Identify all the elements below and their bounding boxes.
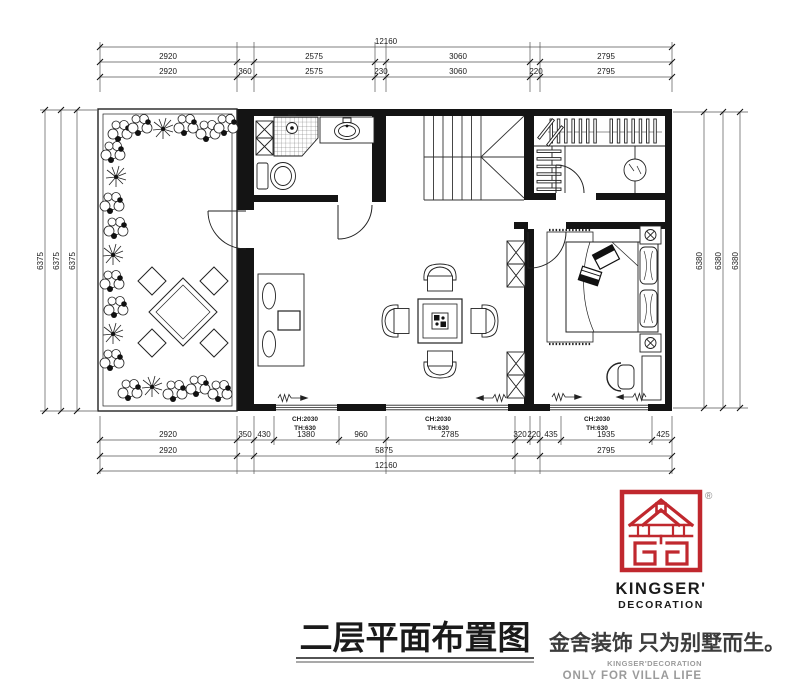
dimension-chain-top: 12160 2920 2575 3060 2795 2920 360 2575 … (97, 37, 675, 92)
dimension-chain-right: 6380 6380 6380 (673, 109, 748, 411)
window-label-ch: CH:2030 (425, 416, 451, 423)
brand-tagline: 金舍装饰 只为别墅而生。 (548, 631, 785, 655)
dim-label: 3060 (449, 52, 467, 61)
terrace (98, 109, 238, 411)
toilet (257, 163, 296, 190)
curtain-symbol (552, 394, 581, 401)
dim-label: 220 (527, 430, 541, 439)
registered-mark: ® (705, 491, 713, 502)
dim-label: 320 (513, 430, 527, 439)
floor-plan-sheet: 12160 2920 2575 3060 2795 2920 360 2575 … (0, 0, 800, 685)
kingser-logo: ® KINGSER' DECORATION (615, 491, 713, 611)
desk (642, 356, 661, 400)
closet-mirror (624, 146, 646, 193)
terrace-table-set (138, 267, 228, 357)
drawing-title: 二层平面布置图 (296, 620, 534, 662)
dim-label: 6375 (36, 252, 45, 270)
dim-label: 230 (374, 67, 388, 76)
dim-label: 2920 (159, 67, 177, 76)
window-label-ch: CH:2030 (584, 416, 610, 423)
dim-label: 6380 (731, 252, 740, 270)
sideboard (258, 274, 304, 366)
bathroom (256, 115, 374, 239)
dim-label: 2795 (597, 52, 615, 61)
nightstand (640, 334, 661, 352)
bottom-windows (276, 405, 648, 410)
dim-label: 435 (544, 430, 558, 439)
bathroom-door (338, 205, 372, 239)
desk-chair (607, 363, 634, 391)
brand-tagline-block: 金舍装饰 只为别墅而生。 KINGSER'DECORATION ONLY FOR… (548, 631, 785, 682)
dim-label: 2575 (305, 52, 323, 61)
page-title: 二层平面布置图 (300, 620, 531, 657)
dim-label: 2795 (597, 67, 615, 76)
terrace-plants (100, 115, 238, 403)
dim-label: 6375 (52, 252, 61, 270)
window-label-th: TH:630 (586, 425, 608, 432)
shower (274, 115, 318, 156)
brand-slogan-en: ONLY FOR VILLA LIFE (563, 670, 702, 682)
dim-label: 2920 (159, 430, 177, 439)
bedroom (528, 226, 661, 401)
dim-label: 5875 (375, 446, 393, 455)
dim-label: 6380 (714, 252, 723, 270)
dim-label: 2920 (159, 446, 177, 455)
floor-plan-drawing: 12160 2920 2575 3060 2795 2920 360 2575 … (0, 0, 800, 685)
dim-label: 220 (529, 67, 543, 76)
window-label-th: TH:630 (294, 425, 316, 432)
curtain-symbol (477, 395, 506, 402)
dimension-chain-left: 6375 6375 6375 (36, 107, 97, 414)
dim-label: 350 (238, 430, 252, 439)
dim-label: 430 (257, 430, 271, 439)
dim-label: 12160 (375, 37, 398, 46)
brand-name-sub: DECORATION (618, 599, 704, 611)
dim-label: 360 (238, 67, 252, 76)
dim-label: 2575 (305, 67, 323, 76)
walk-in-closet (534, 119, 665, 193)
window-label-th: TH:630 (427, 425, 449, 432)
kingser-logo-mark (622, 492, 700, 570)
curtain-symbol (278, 395, 307, 402)
dim-label: 425 (656, 430, 670, 439)
dim-label: 12160 (375, 461, 398, 470)
dim-label: 960 (354, 430, 368, 439)
bed (566, 242, 658, 332)
terrace-door (208, 211, 246, 249)
staircase (424, 116, 524, 200)
dim-label: 3060 (449, 67, 467, 76)
dining-table-set (382, 264, 498, 378)
dim-label: 2920 (159, 52, 177, 61)
dim-label: 6380 (695, 252, 704, 270)
window-label-ch: CH:2030 (292, 416, 318, 423)
bathroom-cabinet (256, 121, 273, 155)
display-cabinets (507, 241, 525, 398)
brand-name: KINGSER' (615, 580, 706, 598)
vanity-sink (320, 117, 374, 143)
nightstand (640, 226, 661, 244)
dim-label: 6375 (68, 252, 77, 270)
dim-label: 2795 (597, 446, 615, 455)
living-room (208, 211, 525, 402)
brand-tagline-en: KINGSER'DECORATION (607, 659, 702, 668)
